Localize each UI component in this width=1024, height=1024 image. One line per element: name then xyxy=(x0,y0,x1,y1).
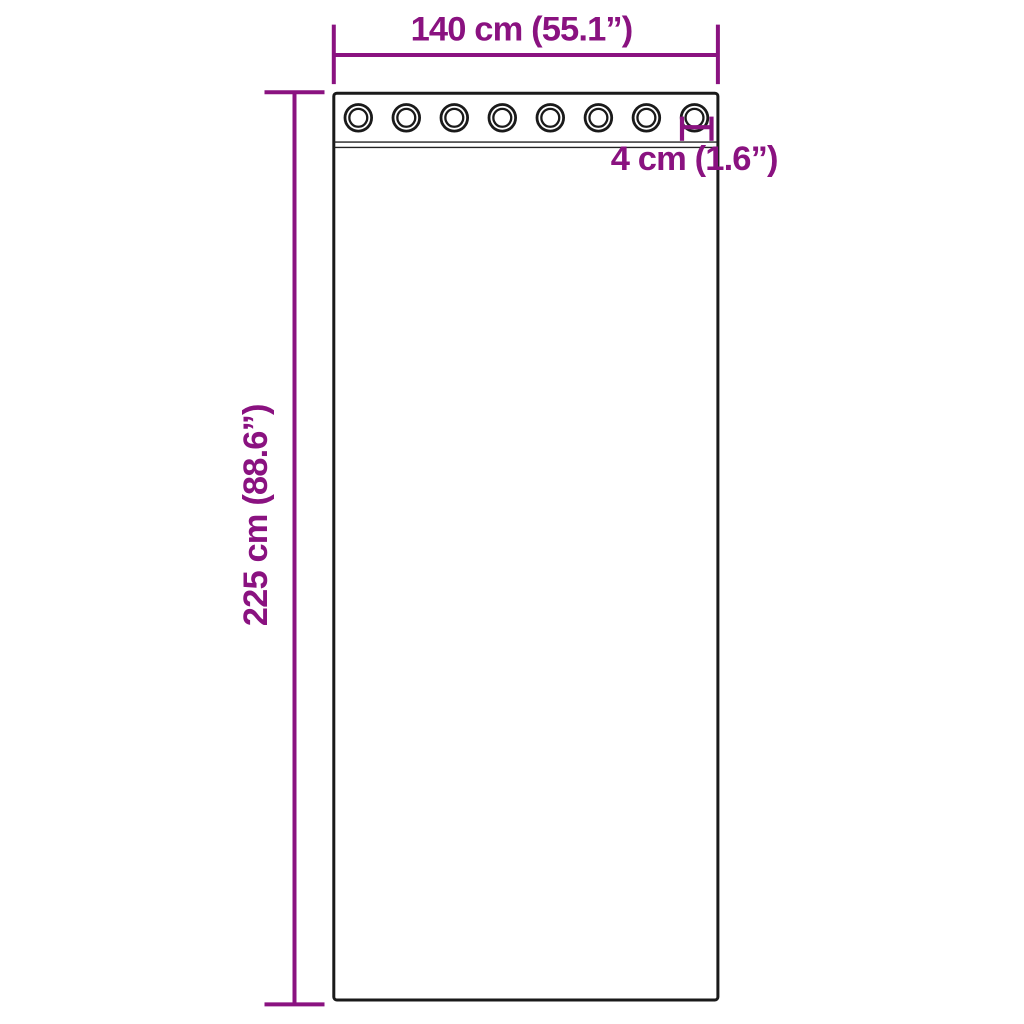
svg-text:140 cm (55.1”): 140 cm (55.1”) xyxy=(411,11,633,49)
svg-text:4 cm (1.6”): 4 cm (1.6”) xyxy=(611,140,778,178)
svg-text:225 cm (88.6”): 225 cm (88.6”) xyxy=(237,404,275,626)
